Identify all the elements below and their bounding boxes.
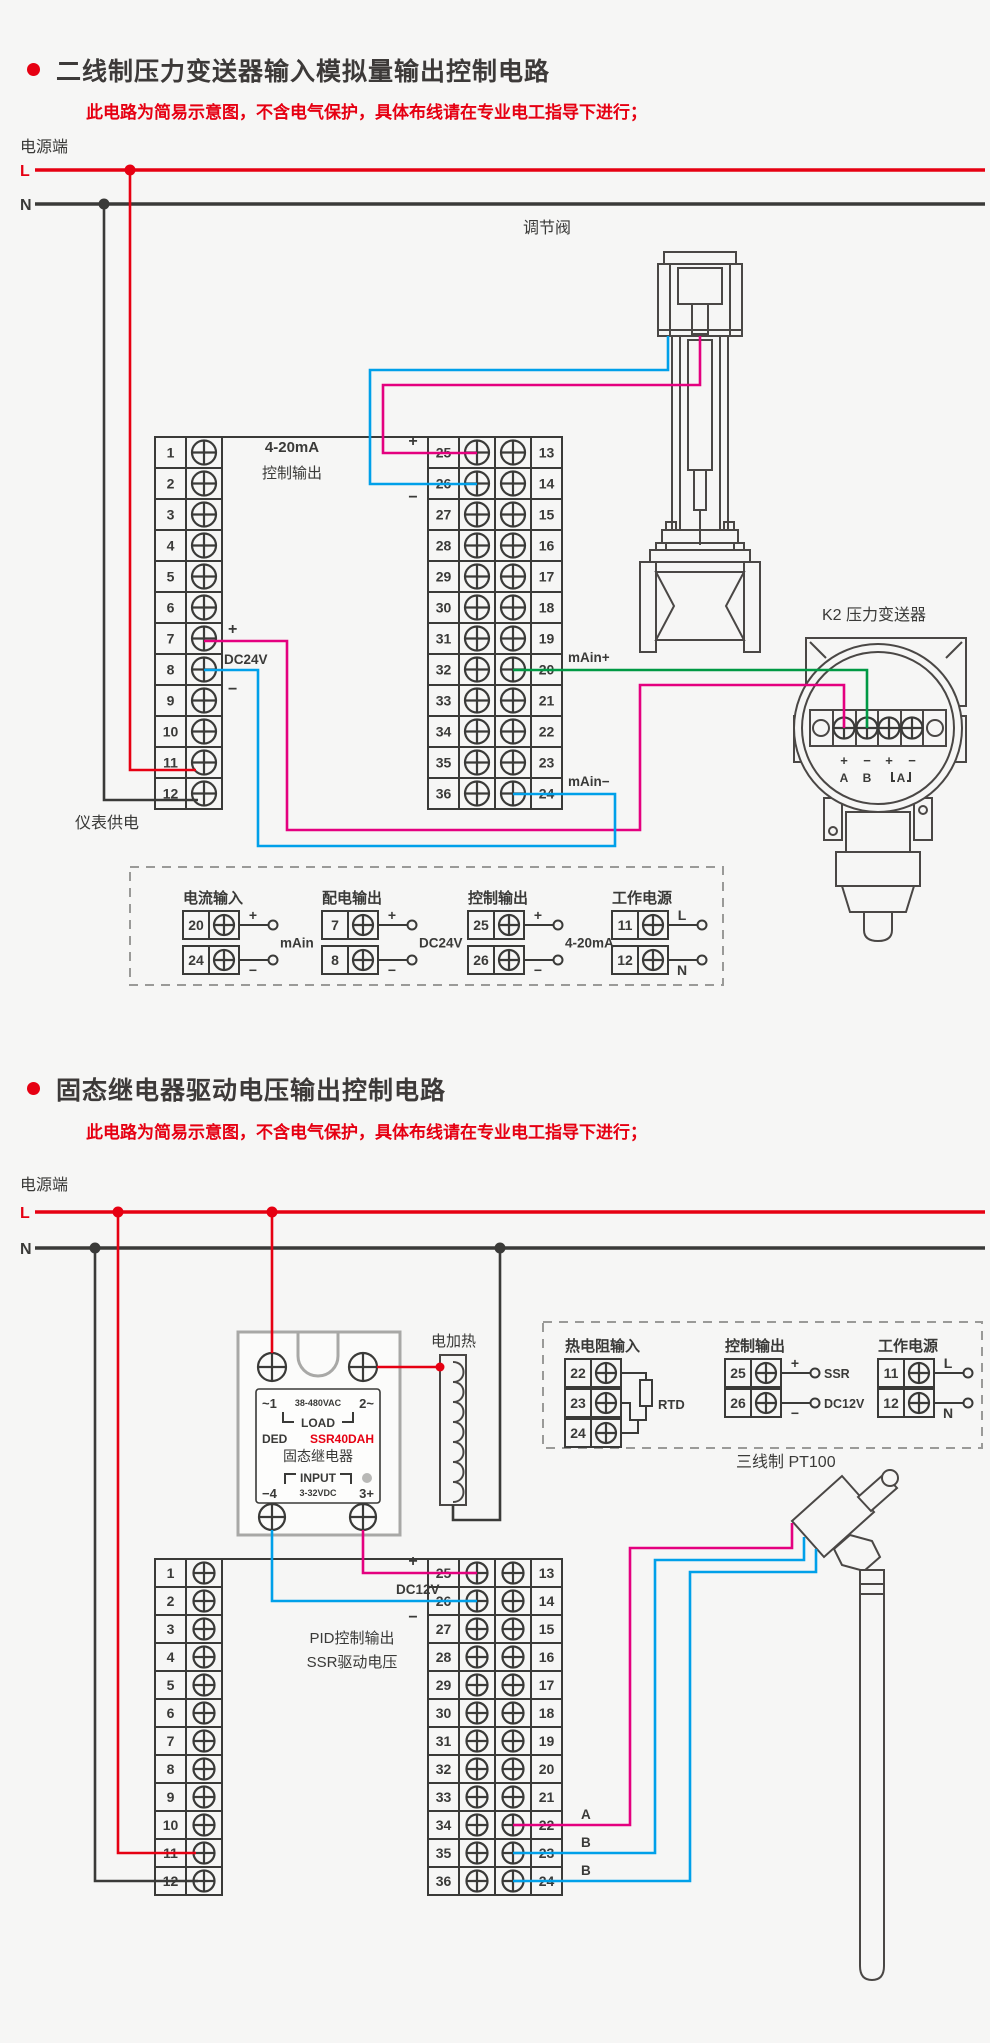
d2-legend-rtd-input: 热电阻输入222324 xyxy=(565,1337,640,1447)
ssr-screw-4 xyxy=(259,1504,285,1530)
terminal-number: 33 xyxy=(436,1789,452,1805)
terminal-number: 22 xyxy=(570,1365,586,1381)
wire-end-icon xyxy=(269,956,278,965)
pressure-transmitter xyxy=(794,638,966,941)
legend-group-label: 4-20mA xyxy=(565,936,614,951)
legend-group-label: mAin xyxy=(280,936,314,951)
terminal-number: 30 xyxy=(436,1705,452,1721)
legend-sign: + xyxy=(388,907,396,923)
d1-center-terminal-block: 2513261427152816291730183119322033213422… xyxy=(428,437,562,809)
tx-sign-4: − xyxy=(908,753,916,768)
ssr-relay: ~1 38-480VAC 2~ LOAD DED SSR40DAH 固态继电器 … xyxy=(238,1332,400,1535)
ssr-vac: 38-480VAC xyxy=(295,1398,342,1408)
terminal-number: 21 xyxy=(539,693,555,709)
d2-wire-B2-label: B xyxy=(581,1863,591,1878)
d2-L-label: L xyxy=(20,1205,30,1222)
tx-letter-B: B xyxy=(863,771,872,785)
terminal-number: 8 xyxy=(167,662,175,678)
heater xyxy=(440,1355,466,1505)
terminal-number: 20 xyxy=(539,1761,555,1777)
diagram2: ~1 38-480VAC 2~ LOAD DED SSR40DAH 固态继电器 … xyxy=(20,1176,985,1980)
d1-out-plus: + xyxy=(408,433,417,450)
d2-heater-junction xyxy=(436,1363,445,1372)
d1-instrument-power-label: 仪表供电 xyxy=(75,814,139,832)
d2-left-terminal-block: 123456789101112 xyxy=(155,1559,222,1895)
terminal-number: 18 xyxy=(539,600,555,616)
terminal-number: 1 xyxy=(167,1565,175,1581)
terminal-number: 7 xyxy=(167,631,175,647)
terminal-number: 15 xyxy=(539,507,555,523)
d1-legend-current-input: 电流输入20+24−mAin xyxy=(183,889,314,978)
legend-group-title: 配电输出 xyxy=(322,889,382,907)
ssr-led-icon xyxy=(362,1473,372,1483)
terminal-number: 16 xyxy=(539,538,555,554)
d1-legend-work-power: 工作电源11L12N xyxy=(612,889,707,978)
terminal-number: 16 xyxy=(539,1649,555,1665)
wire-end-icon xyxy=(811,1399,820,1408)
terminal-number: 34 xyxy=(436,724,452,740)
d2-pid-label-1: PID控制输出 xyxy=(309,1630,394,1647)
terminal-number: 31 xyxy=(436,1733,452,1749)
terminal-number: 26 xyxy=(473,952,489,968)
tx-sign-3: + xyxy=(885,753,893,768)
d1-N-label: N xyxy=(20,197,32,214)
terminal-number: 27 xyxy=(436,1621,452,1637)
d2-junction-L2 xyxy=(267,1207,278,1218)
terminal-number: 11 xyxy=(163,755,178,771)
ssr-t3: 3+ xyxy=(359,1486,374,1501)
d1-legend-power-output: 配电输出7+8−DC24V xyxy=(322,889,463,978)
legend-sign: + xyxy=(791,1355,799,1371)
legend-group-title: 工作电源 xyxy=(612,889,672,907)
terminal-number: 19 xyxy=(539,631,555,647)
terminal-number: 25 xyxy=(730,1365,746,1381)
terminal-number: 7 xyxy=(167,1733,175,1749)
terminal-number: 1 xyxy=(167,445,175,461)
transmitter-label: K2 压力变送器 xyxy=(822,606,926,624)
wiring-diagram-page: 二线制压力变送器输入模拟量输出控制电路 此电路为简易示意图，不含电气保护，具体布… xyxy=(0,0,990,2043)
terminal-number: 33 xyxy=(436,693,452,709)
d1-caption-2: 控制输出 xyxy=(262,465,322,482)
terminal-number: 9 xyxy=(167,693,175,709)
legend-sign: + xyxy=(249,907,257,923)
ssr-model: SSR40DAH xyxy=(310,1432,374,1446)
terminal-number: 36 xyxy=(436,786,452,802)
d1-legend-control-output: 控制输出25+26−4-20mA xyxy=(468,889,614,978)
heater-coil-icon xyxy=(453,1362,464,1502)
terminal-number: 15 xyxy=(539,1621,555,1637)
terminal-number: 28 xyxy=(436,538,452,554)
terminal-number: 8 xyxy=(167,1761,175,1777)
rtd-symbol: RTD xyxy=(621,1373,685,1433)
wire-end-icon xyxy=(698,956,707,965)
d1-main-minus-label: mAin− xyxy=(568,774,610,789)
wire-end-icon xyxy=(269,921,278,930)
d2-pid-label-2: SSR驱动电压 xyxy=(307,1654,398,1671)
terminal-number: 7 xyxy=(331,917,339,933)
terminal-number: 36 xyxy=(436,1873,452,1889)
wire-end-icon xyxy=(811,1369,820,1378)
legend-group-title: 控制输出 xyxy=(725,1337,785,1355)
terminal-number: 17 xyxy=(539,569,555,585)
legend-group-label: DC24V xyxy=(419,936,463,951)
terminal-number: 10 xyxy=(163,1817,179,1833)
pt100-label: 三线制 PT100 xyxy=(736,1453,836,1471)
wire-end-icon xyxy=(408,921,417,930)
terminal-number: 6 xyxy=(167,1705,175,1721)
d2-dc12v-label: DC12V xyxy=(396,1582,440,1597)
terminal-number: 21 xyxy=(539,1789,555,1805)
d2-N-label: N xyxy=(20,1241,32,1258)
legend-sign: + xyxy=(534,907,542,923)
terminal-number: 23 xyxy=(570,1395,586,1411)
wire-end-icon xyxy=(964,1399,973,1408)
terminal-number: 35 xyxy=(436,1845,452,1861)
terminal-number: 12 xyxy=(617,952,633,968)
d2-junction-N2 xyxy=(495,1243,506,1254)
terminal-number: 30 xyxy=(436,600,452,616)
terminal-number: 13 xyxy=(539,445,555,461)
terminal-number: 24 xyxy=(188,952,204,968)
d1-out-minus: − xyxy=(408,489,417,506)
legend-group-title: 工作电源 xyxy=(878,1337,938,1355)
legend-group-title: 热电阻输入 xyxy=(565,1337,640,1355)
terminal-number: 18 xyxy=(539,1705,555,1721)
terminal-number: 31 xyxy=(436,631,452,647)
d1-power-terminal-label: 电源端 xyxy=(20,138,68,156)
ssr-screw-3 xyxy=(350,1504,376,1530)
wire-end-icon xyxy=(554,921,563,930)
legend-group-title: 电流输入 xyxy=(183,889,243,907)
legend-group-title: 控制输出 xyxy=(468,889,528,907)
terminal-number: 17 xyxy=(539,1677,555,1693)
ssr-t2: 2~ xyxy=(359,1396,374,1411)
terminal-number: 28 xyxy=(436,1649,452,1665)
d1-left-terminal-block: 123456789101112 xyxy=(155,437,222,809)
terminal-number: 20 xyxy=(188,917,204,933)
terminal-number: 32 xyxy=(436,1761,452,1777)
terminal-number: 11 xyxy=(884,1365,899,1381)
terminal-number: 26 xyxy=(730,1395,746,1411)
legend-sign: − xyxy=(388,962,396,978)
valve-label: 调节阀 xyxy=(523,219,571,237)
terminal-number: 29 xyxy=(436,1677,452,1693)
terminal-number: 2 xyxy=(167,476,175,492)
terminal-number: 3 xyxy=(167,507,175,523)
d1-dc24v-minus: − xyxy=(228,681,237,698)
ssr-t4: −4 xyxy=(262,1486,278,1501)
terminal-number: 25 xyxy=(473,917,489,933)
legend-sign: − xyxy=(249,962,257,978)
terminal-number: 24 xyxy=(570,1425,586,1441)
legend-sign: L xyxy=(944,1355,953,1371)
d1-junction-N xyxy=(99,199,110,210)
ssr-screw-2 xyxy=(349,1353,377,1381)
d2-legend-work-power: 工作电源11L12N xyxy=(878,1337,973,1421)
terminal-number: 4 xyxy=(167,1649,175,1665)
d1-dc24v-plus: + xyxy=(228,621,237,638)
d2-wires xyxy=(95,1212,816,1881)
terminal-number: 10 xyxy=(163,724,179,740)
ssr-brand: DED xyxy=(262,1432,288,1446)
tx-sign-1: + xyxy=(840,753,848,768)
d2-legend-control-output: 控制输出25+SSR26−DC12V xyxy=(725,1337,865,1421)
terminal-number: 34 xyxy=(436,1817,452,1833)
legend-sign: N xyxy=(943,1405,953,1421)
d2-junction-L1 xyxy=(113,1207,124,1218)
d1-junction-L xyxy=(125,165,136,176)
diagram1: 123456789101112 251326142715281629173018… xyxy=(20,138,985,985)
d2-junction-N1 xyxy=(90,1243,101,1254)
wire-end-icon xyxy=(554,956,563,965)
terminal-number: 22 xyxy=(539,724,555,740)
terminal-number: 27 xyxy=(436,507,452,523)
terminal-number: 29 xyxy=(436,569,452,585)
d2-out-plus: + xyxy=(408,1553,417,1570)
terminal-number: 11 xyxy=(618,917,633,933)
ssr-vdc: 3-32VDC xyxy=(299,1488,337,1498)
d1-dc24v-label: DC24V xyxy=(224,652,268,667)
d2-power-terminal-label: 电源端 xyxy=(20,1176,68,1194)
d1-caption-1: 4-20mA xyxy=(265,439,319,456)
legend-row-label: SSR xyxy=(824,1367,850,1381)
terminal-number: 12 xyxy=(883,1395,899,1411)
terminal-number: 9 xyxy=(167,1789,175,1805)
terminal-number: 14 xyxy=(539,476,555,492)
ssr-input: INPUT xyxy=(300,1471,337,1485)
terminal-number: 4 xyxy=(167,538,175,554)
d1-wires xyxy=(104,170,867,846)
pt100-sensor xyxy=(792,1470,898,1980)
legend-sign: N xyxy=(677,962,687,978)
terminal-number: 3 xyxy=(167,1621,175,1637)
ssr-t1: ~1 xyxy=(262,1396,277,1411)
tx-sign-2: − xyxy=(863,753,871,768)
wire-end-icon xyxy=(698,921,707,930)
terminal-number: 35 xyxy=(436,755,452,771)
d2-wire-B1-label: B xyxy=(581,1835,591,1850)
legend-sign: − xyxy=(791,1405,799,1421)
tx-letter-A: A xyxy=(840,771,849,785)
d2-out-minus: − xyxy=(408,1609,417,1626)
terminal-number: 23 xyxy=(539,755,555,771)
legend-sign: − xyxy=(534,962,542,978)
wire-end-icon xyxy=(408,956,417,965)
terminal-number: 13 xyxy=(539,1565,555,1581)
diagram-canvas: 123456789101112 251326142715281629173018… xyxy=(0,0,990,2043)
ssr-screw-1 xyxy=(258,1353,286,1381)
terminal-number: 6 xyxy=(167,600,175,616)
terminal-number: 32 xyxy=(436,662,452,678)
terminal-number: 5 xyxy=(167,569,175,585)
tx-letter-A2: A xyxy=(897,771,906,785)
d2-center-terminal-block: 2513261427152816291730183119322033213422… xyxy=(428,1559,562,1895)
d1-L-label: L xyxy=(20,163,30,180)
rtd-label: RTD xyxy=(658,1397,685,1412)
control-valve xyxy=(640,252,760,652)
ssr-name: 固态继电器 xyxy=(283,1448,353,1464)
d2-wire-A-label: A xyxy=(581,1807,591,1822)
heater-label: 电加热 xyxy=(431,1333,476,1350)
terminal-number: 2 xyxy=(167,1593,175,1609)
terminal-number: 14 xyxy=(539,1593,555,1609)
wire-end-icon xyxy=(964,1369,973,1378)
legend-row-label: DC12V xyxy=(824,1397,865,1411)
terminal-number: 19 xyxy=(539,1733,555,1749)
d1-main-plus-label: mAin+ xyxy=(568,650,610,665)
legend-sign: L xyxy=(678,907,687,923)
ssr-load: LOAD xyxy=(301,1416,335,1430)
terminal-number: 5 xyxy=(167,1677,175,1693)
terminal-number: 8 xyxy=(331,952,339,968)
